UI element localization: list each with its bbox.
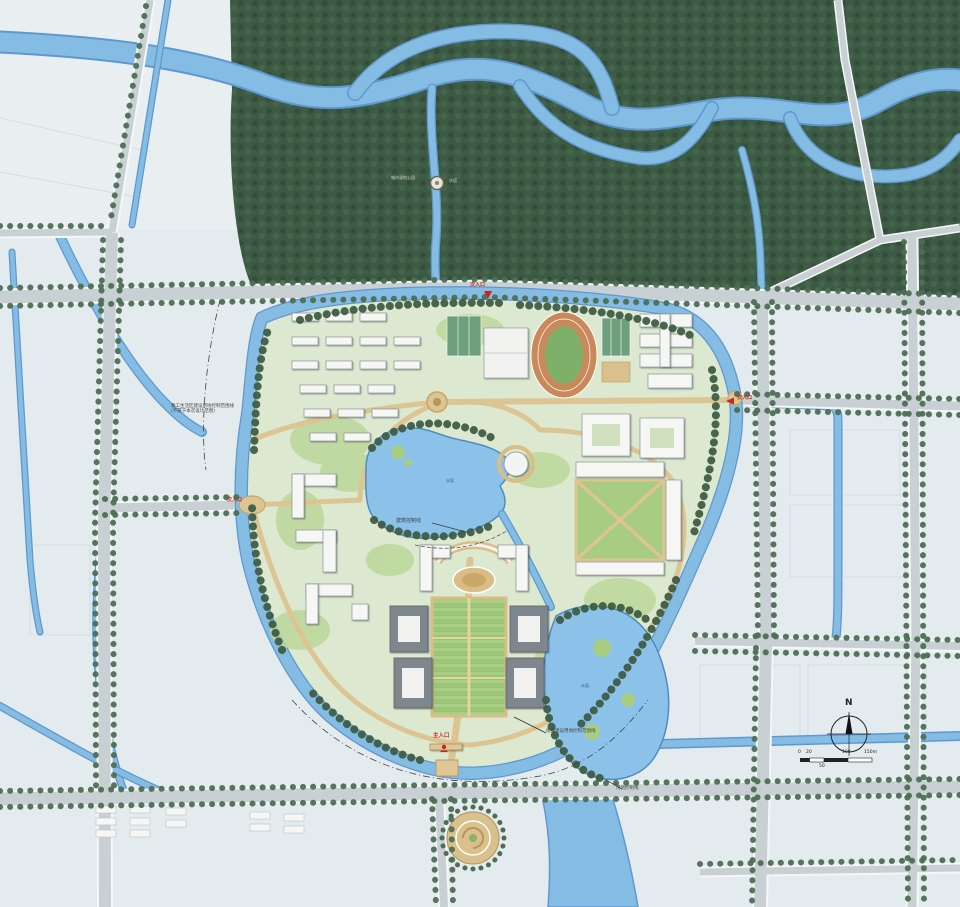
site-plan-graphic: [0, 0, 960, 907]
scale-bar: [800, 758, 872, 762]
east-academic-cluster: [576, 414, 684, 575]
campus-master-plan: 城市湿地公园 水塔 教工生活区建设用地控制范围线 (不属于本次设计范围) 建筑控…: [0, 0, 960, 907]
pagoda-marker: [431, 177, 444, 190]
spiral-roundabout: [447, 812, 499, 864]
central-round-building: [499, 447, 533, 481]
main-entrance-emblem-icon: [442, 745, 446, 749]
